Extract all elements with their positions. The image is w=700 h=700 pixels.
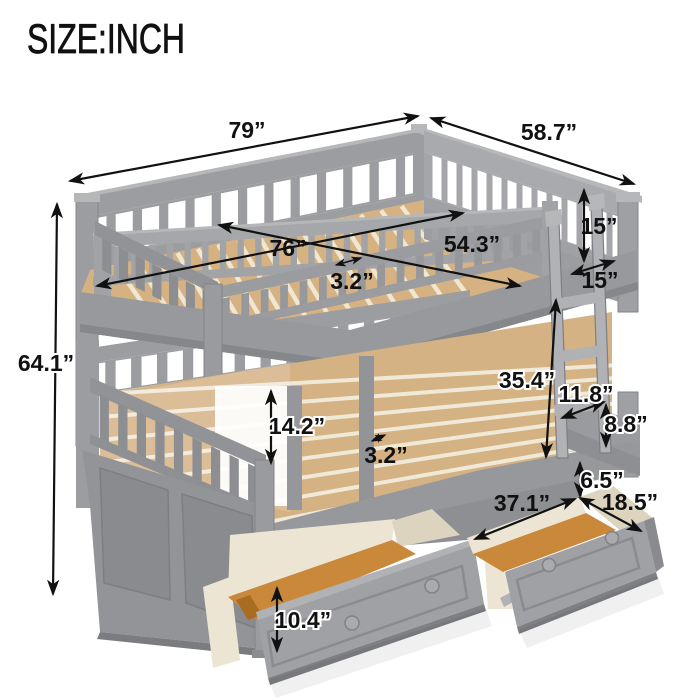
svg-text:3.2”: 3.2” [330,268,373,294]
svg-text:15”: 15” [581,267,618,293]
svg-text:64.1”: 64.1” [18,350,74,376]
svg-text:79”: 79” [228,117,265,143]
svg-text:14.2”: 14.2” [269,413,325,439]
svg-text:18.5”: 18.5” [602,489,658,515]
svg-text:SIZE:INCH: SIZE:INCH [27,15,185,62]
svg-text:58.7”: 58.7” [521,119,577,145]
svg-text:11.8”: 11.8” [559,381,614,407]
svg-text:8.8”: 8.8” [604,411,647,437]
svg-text:76”: 76” [269,235,306,261]
svg-text:35.4”: 35.4” [499,367,555,393]
svg-text:3.2”: 3.2” [364,442,407,468]
svg-text:37.1”: 37.1” [494,490,550,516]
svg-text:10.4”: 10.4” [275,607,331,633]
svg-text:54.3”: 54.3” [444,231,500,257]
svg-text:15”: 15” [580,213,617,239]
